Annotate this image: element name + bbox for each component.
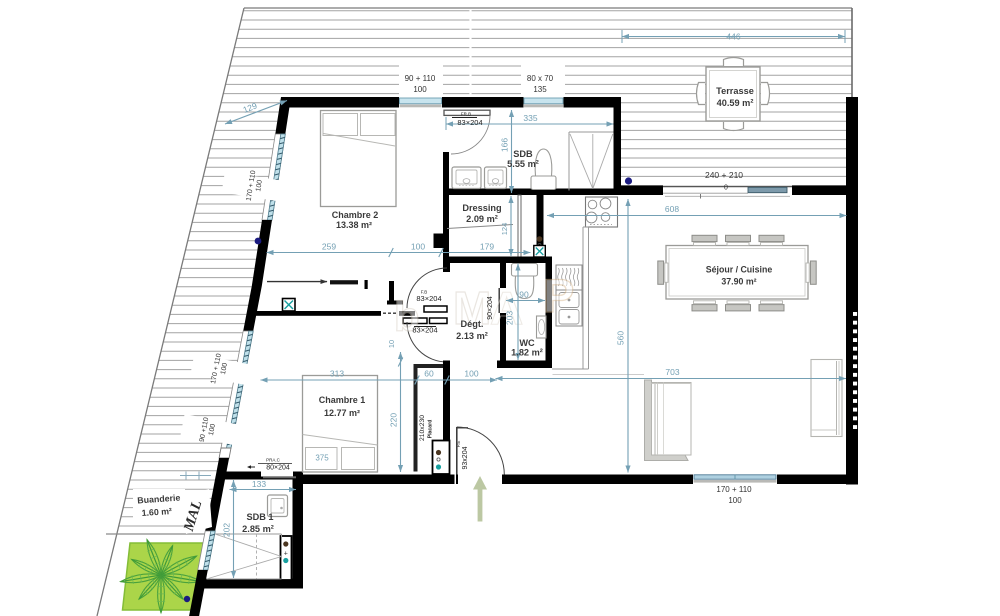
svg-text:220: 220 bbox=[389, 413, 399, 427]
svg-text:124: 124 bbox=[500, 223, 509, 236]
svg-text:703: 703 bbox=[665, 367, 679, 377]
svg-text:80×204: 80×204 bbox=[266, 465, 290, 472]
svg-text:0: 0 bbox=[724, 185, 728, 192]
svg-text:Dégt.: Dégt. bbox=[461, 319, 484, 329]
svg-text:210x230: 210x230 bbox=[419, 415, 426, 441]
svg-text:13.38 m²: 13.38 m² bbox=[336, 220, 372, 230]
svg-text:Terrasse: Terrasse bbox=[716, 86, 754, 96]
svg-text:2.13 m²: 2.13 m² bbox=[456, 331, 488, 341]
svg-text:560: 560 bbox=[616, 331, 626, 345]
svg-text:Chambre 1: Chambre 1 bbox=[319, 395, 366, 405]
svg-text:202: 202 bbox=[222, 523, 232, 537]
svg-text:2.09 m²: 2.09 m² bbox=[466, 214, 498, 224]
svg-text:166: 166 bbox=[500, 138, 510, 152]
svg-text:80 x 70: 80 x 70 bbox=[527, 74, 554, 83]
svg-text:Placard: Placard bbox=[428, 420, 434, 439]
svg-text:SDB 1: SDB 1 bbox=[246, 512, 273, 522]
svg-text:10: 10 bbox=[387, 340, 396, 348]
svg-text:P: P bbox=[543, 269, 574, 322]
svg-text:Chambre 2: Chambre 2 bbox=[332, 210, 379, 220]
svg-text:100: 100 bbox=[413, 85, 427, 94]
svg-text:179: 179 bbox=[480, 242, 494, 252]
svg-text:37.90 m²: 37.90 m² bbox=[721, 277, 756, 287]
svg-text:40.59 m²: 40.59 m² bbox=[717, 98, 754, 108]
svg-text:93x204: 93x204 bbox=[462, 446, 469, 469]
svg-text:90×204: 90×204 bbox=[487, 296, 494, 320]
svg-text:1.82 m²: 1.82 m² bbox=[511, 348, 543, 358]
svg-text:100: 100 bbox=[464, 369, 478, 379]
svg-text:SDB: SDB bbox=[513, 149, 533, 159]
svg-text:608: 608 bbox=[665, 204, 679, 214]
svg-text:Dressing: Dressing bbox=[462, 203, 501, 213]
svg-text:313: 313 bbox=[330, 369, 344, 379]
svg-text:WC: WC bbox=[519, 338, 535, 348]
svg-text:375: 375 bbox=[315, 454, 329, 463]
svg-text:PRA.C: PRA.C bbox=[266, 458, 281, 463]
svg-text:F.B: F.B bbox=[421, 290, 428, 295]
svg-text:90: 90 bbox=[519, 290, 529, 300]
svg-text:2.85 m²: 2.85 m² bbox=[242, 524, 274, 534]
svg-text:170 + 110: 170 + 110 bbox=[716, 485, 752, 494]
svg-text:12.77 m²: 12.77 m² bbox=[324, 408, 360, 418]
svg-text:83×204: 83×204 bbox=[457, 118, 482, 127]
svg-text:60: 60 bbox=[424, 369, 434, 379]
svg-text:100: 100 bbox=[728, 496, 742, 505]
svg-text:135: 135 bbox=[533, 85, 547, 94]
svg-text:90 + 110: 90 + 110 bbox=[405, 74, 436, 83]
svg-text:203: 203 bbox=[505, 311, 515, 325]
svg-text:P.E: P.E bbox=[456, 441, 461, 448]
svg-text:259: 259 bbox=[322, 242, 336, 252]
svg-text:83×204: 83×204 bbox=[416, 294, 441, 303]
svg-text:1.60 m²: 1.60 m² bbox=[141, 506, 172, 518]
svg-text:5.55 m²: 5.55 m² bbox=[507, 159, 539, 169]
svg-text:446: 446 bbox=[726, 32, 740, 42]
svg-text:133: 133 bbox=[252, 479, 266, 489]
svg-text:+: + bbox=[284, 551, 288, 558]
svg-text:FR.B: FR.B bbox=[461, 112, 471, 117]
svg-text:100: 100 bbox=[411, 242, 425, 252]
svg-text:335: 335 bbox=[523, 113, 537, 123]
svg-text:240 + 210: 240 + 210 bbox=[705, 170, 743, 180]
svg-text:Séjour / Cuisine: Séjour / Cuisine bbox=[706, 265, 773, 275]
